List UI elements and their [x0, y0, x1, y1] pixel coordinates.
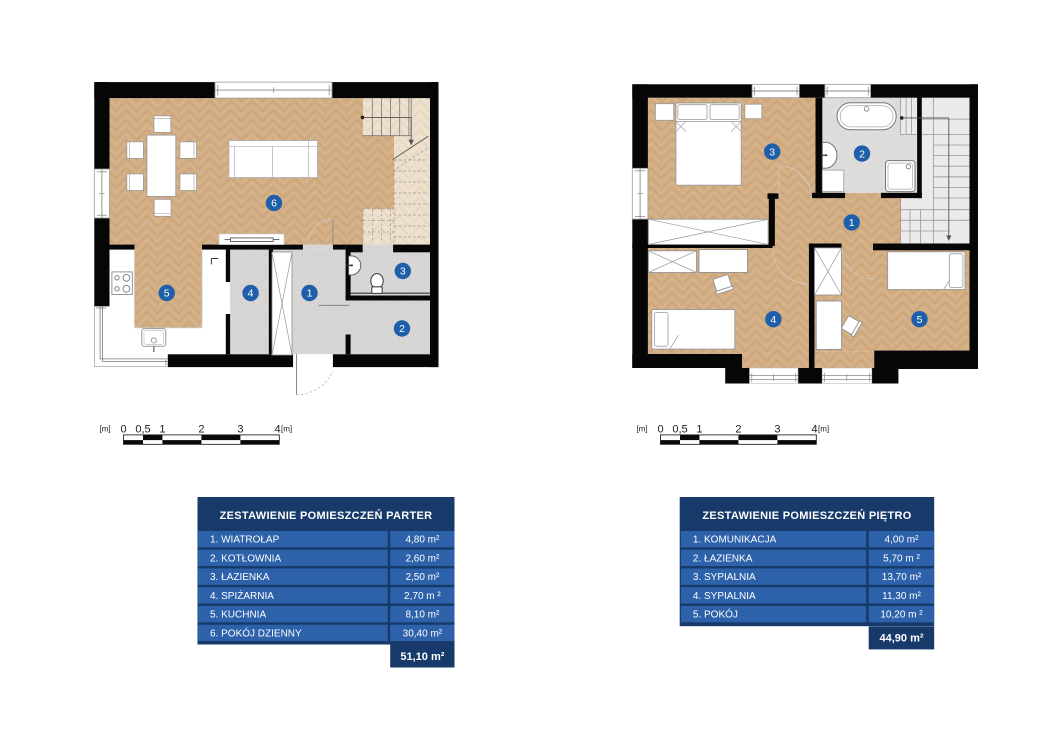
- svg-text:1: 1: [307, 288, 313, 300]
- svg-text:[m]: [m]: [637, 425, 648, 434]
- svg-text:[m]: [m]: [281, 425, 292, 434]
- svg-text:0,5: 0,5: [135, 424, 150, 436]
- svg-text:2,60 m²: 2,60 m²: [405, 553, 440, 564]
- svg-text:6: 6: [271, 198, 277, 210]
- svg-text:3. ŁAZIENKA: 3. ŁAZIENKA: [210, 572, 270, 583]
- svg-text:2,50 m²: 2,50 m²: [405, 572, 440, 583]
- svg-text:4: 4: [274, 424, 280, 436]
- svg-text:1: 1: [696, 424, 702, 436]
- svg-text:3: 3: [400, 266, 406, 278]
- svg-text:5. POKÓJ: 5. POKÓJ: [693, 608, 738, 621]
- svg-text:ZESTAWIENIE POMIESZCZEŃ PIĘTRO: ZESTAWIENIE POMIESZCZEŃ PIĘTRO: [702, 509, 911, 522]
- svg-text:2. KOTŁOWNIA: 2. KOTŁOWNIA: [210, 553, 281, 564]
- svg-text:0: 0: [120, 424, 126, 436]
- svg-text:0: 0: [657, 424, 663, 436]
- svg-text:4: 4: [248, 288, 254, 300]
- svg-text:51,10 m²: 51,10 m²: [400, 651, 444, 663]
- svg-text:4: 4: [770, 314, 776, 326]
- svg-text:30,40 m²: 30,40 m²: [403, 628, 443, 639]
- svg-text:2: 2: [399, 323, 405, 335]
- svg-text:11,30 m²: 11,30 m²: [882, 591, 921, 602]
- svg-text:3: 3: [237, 424, 243, 436]
- svg-text:4: 4: [811, 424, 817, 436]
- svg-text:5: 5: [164, 288, 170, 300]
- svg-text:1: 1: [159, 424, 165, 436]
- svg-text:0,5: 0,5: [672, 424, 687, 436]
- svg-text:5: 5: [917, 314, 923, 326]
- svg-text:2: 2: [198, 424, 204, 436]
- svg-text:1. KOMUNIKACJA: 1. KOMUNIKACJA: [693, 535, 777, 546]
- svg-text:[m]: [m]: [818, 425, 829, 434]
- svg-text:2: 2: [859, 148, 865, 160]
- svg-text:4,00 m²: 4,00 m²: [885, 535, 920, 546]
- svg-text:4. SPIŻARNIA: 4. SPIŻARNIA: [210, 589, 274, 602]
- svg-text:4,80 m²: 4,80 m²: [405, 535, 440, 546]
- svg-text:1. WIATROŁAP: 1. WIATROŁAP: [210, 535, 280, 546]
- svg-text:3. SYPIALNIA: 3. SYPIALNIA: [693, 572, 756, 583]
- svg-text:ZESTAWIENIE POMIESZCZEŃ PARTER: ZESTAWIENIE POMIESZCZEŃ PARTER: [220, 509, 433, 522]
- svg-text:8,10 m²: 8,10 m²: [405, 610, 440, 621]
- svg-text:3: 3: [774, 424, 780, 436]
- svg-text:4. SYPIALNIA: 4. SYPIALNIA: [693, 591, 756, 602]
- svg-text:2: 2: [735, 424, 741, 436]
- svg-text:[m]: [m]: [100, 425, 111, 434]
- svg-text:13,70 m²: 13,70 m²: [882, 572, 922, 583]
- svg-text:44,90 m²: 44,90 m²: [879, 633, 923, 645]
- svg-text:2. ŁAZIENKA: 2. ŁAZIENKA: [693, 553, 753, 564]
- svg-text:1: 1: [849, 217, 855, 229]
- svg-text:10,20 m ²: 10,20 m ²: [880, 610, 923, 621]
- svg-text:3: 3: [769, 146, 775, 158]
- svg-text:6. POKÓJ DZIENNY: 6. POKÓJ DZIENNY: [210, 626, 302, 639]
- svg-text:5,70 m ²: 5,70 m ²: [883, 553, 920, 564]
- svg-text:5. KUCHNIA: 5. KUCHNIA: [210, 610, 266, 621]
- svg-text:2,70 m ²: 2,70 m ²: [404, 591, 441, 602]
